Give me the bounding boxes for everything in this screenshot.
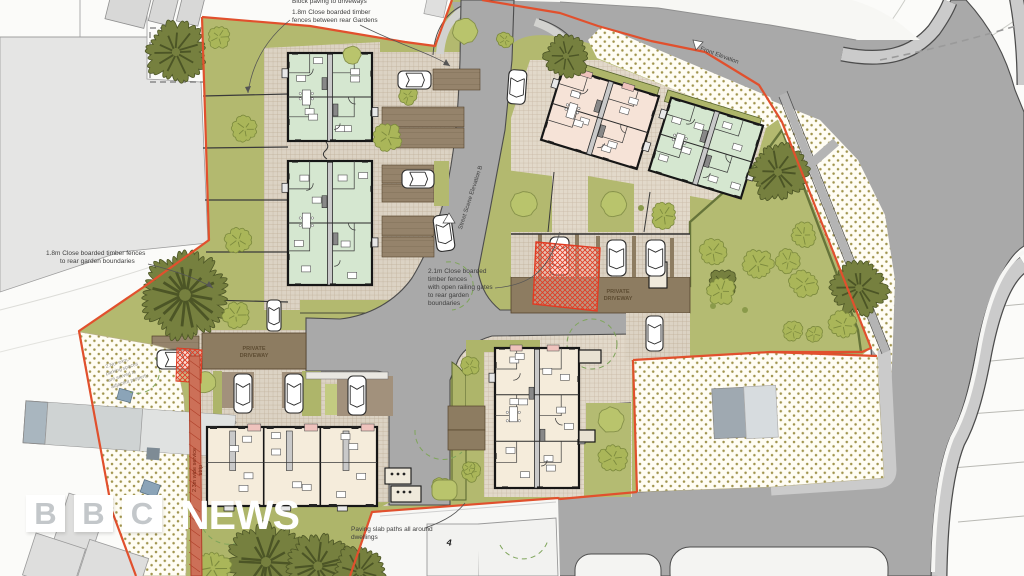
svg-text:DRIVEWAY: DRIVEWAY	[604, 296, 633, 302]
svg-text:timber fences: timber fences	[428, 276, 468, 283]
svg-text:DRIVEWAY: DRIVEWAY	[240, 353, 269, 359]
svg-text:boundaries: boundaries	[428, 300, 461, 307]
svg-text:PRIVATE: PRIVATE	[242, 346, 265, 352]
svg-text:1.8m Close boarded timber: 1.8m Close boarded timber	[292, 9, 371, 16]
svg-text:to rear garden boundaries: to rear garden boundaries	[60, 258, 136, 265]
svg-text:with open railing gates: with open railing gates	[427, 284, 493, 291]
svg-text:fences between rear Gardens: fences between rear Gardens	[292, 17, 378, 24]
svg-text:Block paving to driveways: Block paving to driveways	[292, 0, 368, 5]
svg-text:Paving slab paths all around: Paving slab paths all around	[351, 526, 433, 533]
svg-text:2.1m Close boarded: 2.1m Close boarded	[428, 268, 487, 275]
svg-text:1.8m Close boarded timber fenc: 1.8m Close boarded timber fences	[46, 250, 146, 257]
svg-text:dwellings: dwellings	[351, 534, 378, 541]
svg-text:PRIVATE: PRIVATE	[606, 289, 629, 295]
svg-text:to rear garden: to rear garden	[428, 292, 469, 299]
svg-text:strip: strip	[198, 465, 204, 475]
